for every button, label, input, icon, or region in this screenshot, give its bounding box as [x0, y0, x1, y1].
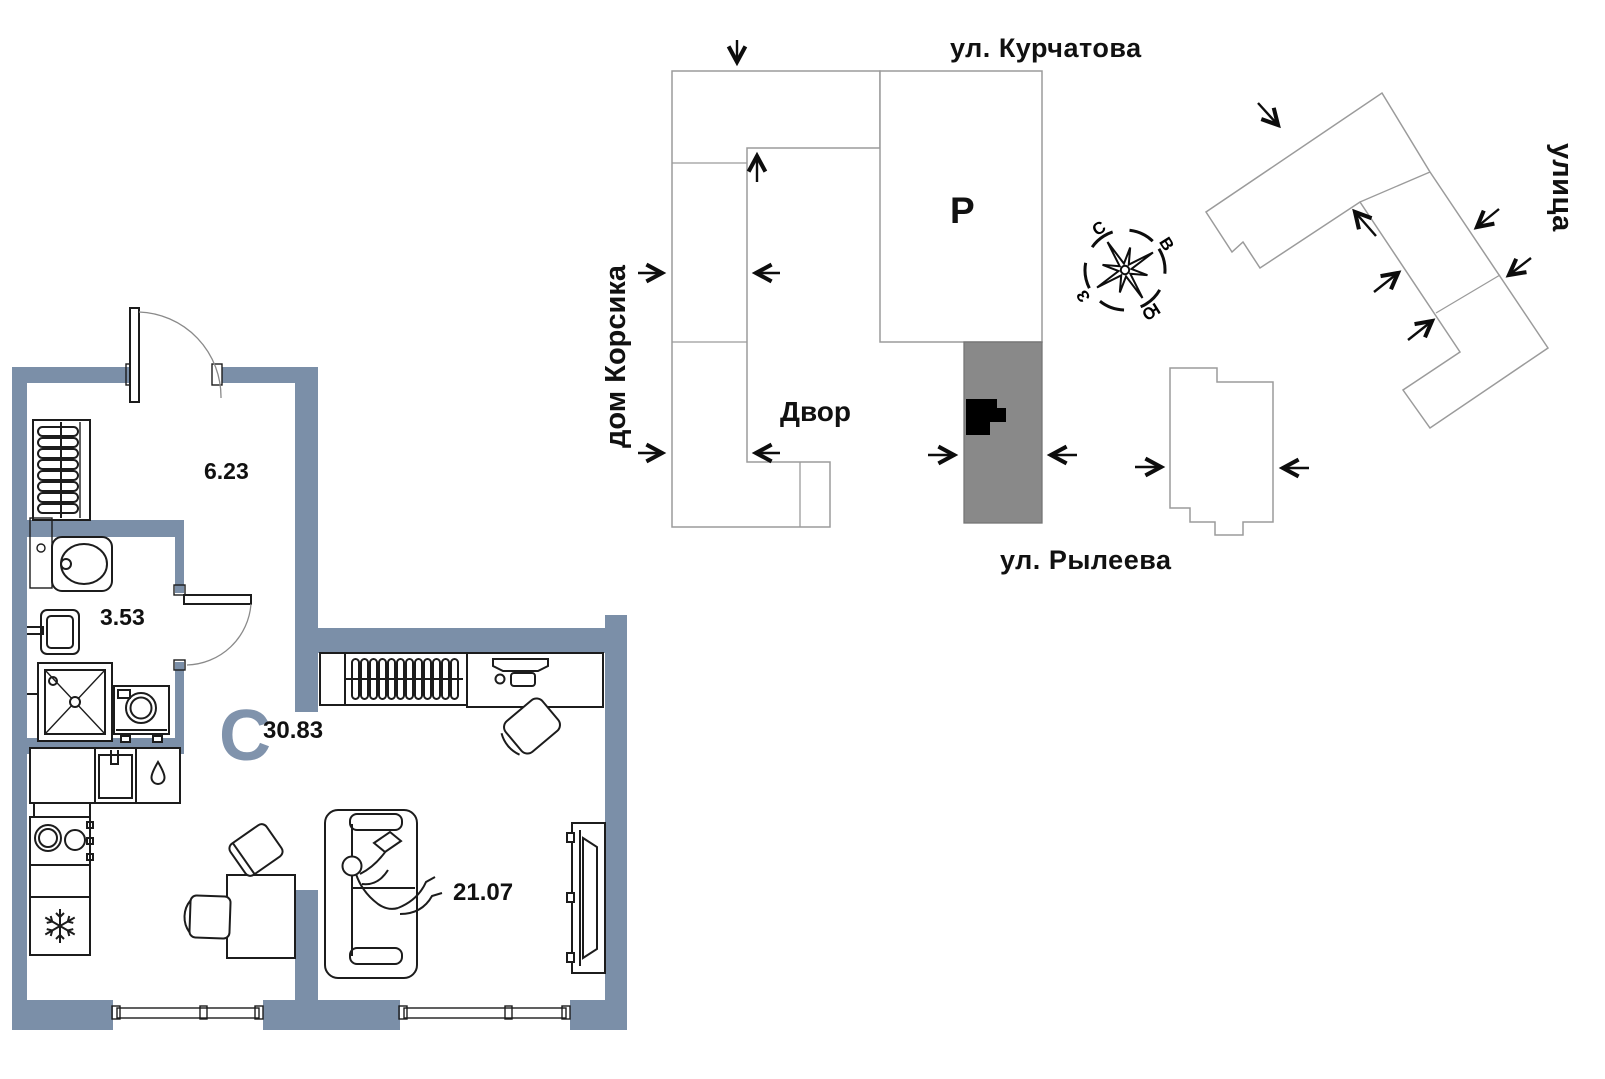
- fridge-icon: [30, 897, 90, 955]
- kitchen-cabinet-icon: [30, 865, 90, 897]
- wardrobe-icon: [320, 653, 467, 705]
- tv-icon: [567, 823, 605, 973]
- site-map: С В Ю З: [638, 40, 1548, 535]
- bathroom-area-label: 3.53: [100, 604, 145, 631]
- site-building-complex: [1206, 93, 1548, 428]
- floorplan-page: С В Ю З: [0, 0, 1605, 1079]
- stove-icon: [30, 817, 93, 865]
- bathtub-icon: [52, 537, 112, 591]
- chair-icon: [227, 822, 285, 878]
- street-label-ulitsa: улица: [1545, 143, 1578, 232]
- entry-door-icon: [126, 308, 222, 402]
- site-building-korsika: [672, 71, 880, 527]
- bathroom-door-icon: [174, 585, 251, 670]
- compass-south: Ю: [1139, 299, 1164, 324]
- chair-icon: [184, 895, 231, 939]
- hallway-area-label: 6.23: [204, 458, 249, 485]
- apartment-plan: [12, 308, 627, 1030]
- sink-icon: [27, 610, 79, 654]
- site-building-house: [1170, 368, 1273, 535]
- kitchen-counter-icon: [30, 748, 180, 817]
- dining-table-icon: [227, 875, 295, 958]
- hall-wardrobe-icon: [33, 420, 90, 520]
- courtyard-label: Двор: [780, 396, 851, 428]
- window-icon: [399, 1006, 570, 1019]
- parking-label: Р: [950, 190, 975, 232]
- compass-icon: С В Ю З: [1044, 189, 1205, 350]
- window-icon: [112, 1006, 263, 1019]
- street-label-kurchatova: ул. Курчатова: [950, 33, 1142, 64]
- plan-graphics: С В Ю З: [0, 0, 1605, 1079]
- street-label-ryleeva: ул. Рылеева: [1000, 545, 1171, 576]
- shower-icon: [27, 663, 112, 741]
- compass-west: З: [1073, 286, 1095, 305]
- washing-machine-icon: [114, 686, 169, 742]
- building-label-korsika: дом Корсика: [600, 265, 633, 448]
- total-area-label: 30.83: [263, 717, 323, 745]
- sofa-icon: [325, 810, 417, 978]
- living-area-label: 21.07: [453, 879, 513, 907]
